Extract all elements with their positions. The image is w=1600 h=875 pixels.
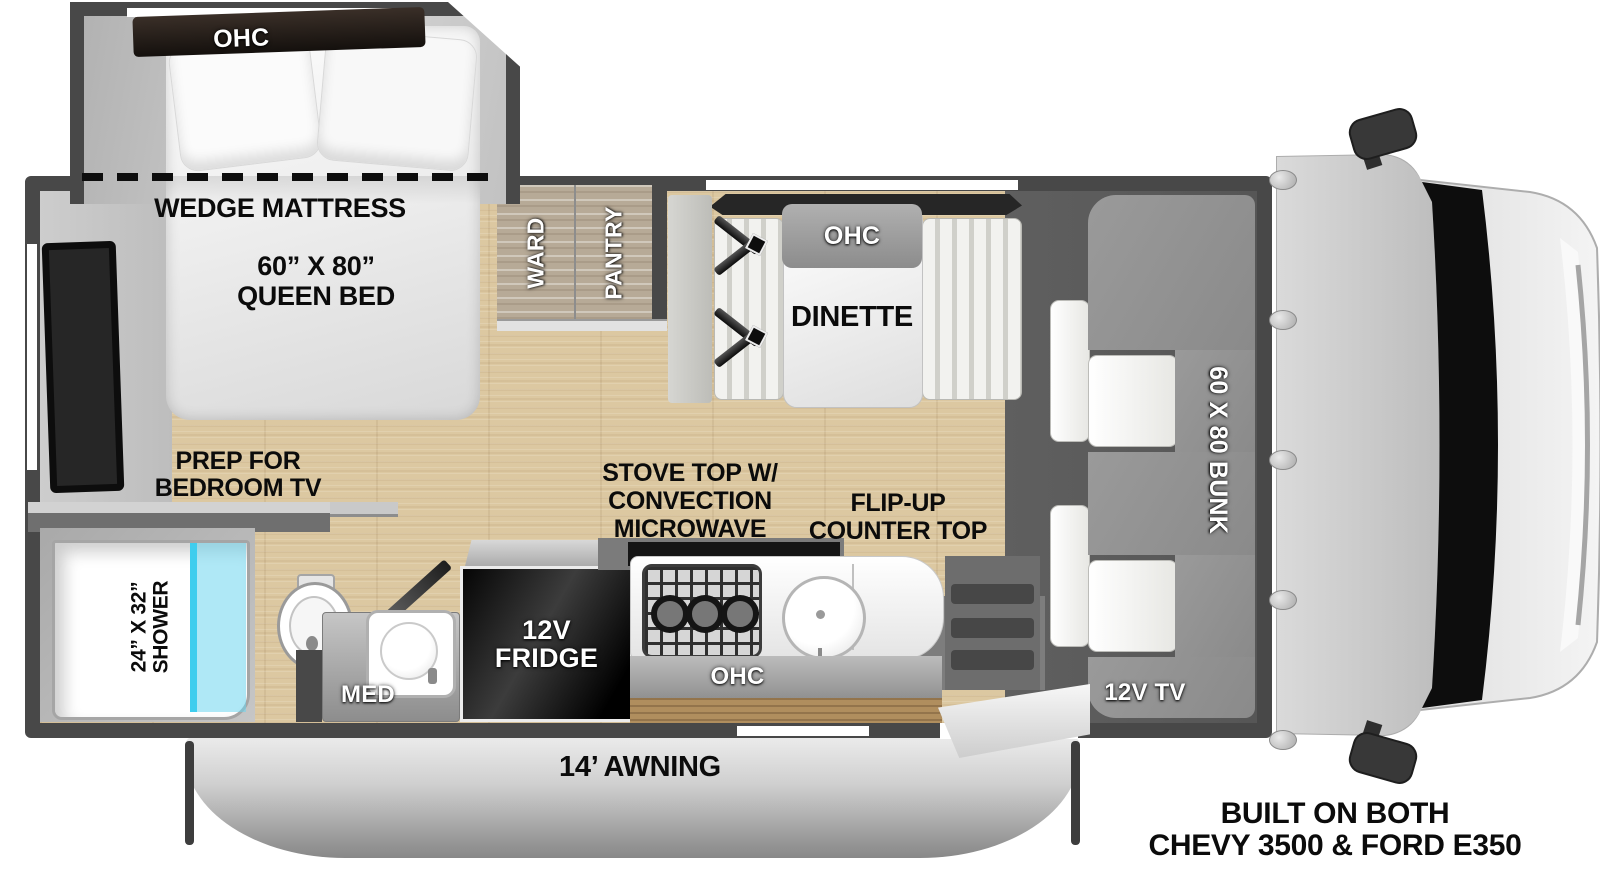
wedge-mattress-label: WEDGE MATTRESS <box>130 194 430 222</box>
cab-seat-passenger <box>1050 300 1090 442</box>
rv-floorplan: 24” X 32” SHOWER MED 12V FRIDGE <box>0 0 1600 875</box>
bunk-label-wrap: 60 X 80 BUNK <box>1190 318 1246 582</box>
left-wall-window <box>27 244 37 470</box>
dinette-wall-window <box>706 180 1018 190</box>
burner-icon <box>721 595 759 633</box>
cab-seat-driver-cushion <box>1088 560 1178 652</box>
kitchen-ohc-cabinet <box>630 656 942 700</box>
cab-seat-driver <box>1050 505 1090 647</box>
kitchen-ohc-label: OHC <box>695 664 780 689</box>
tv-prep-label-1: PREP FOR <box>140 448 336 474</box>
med-label: MED <box>322 682 414 707</box>
pantry-cabinet: PANTRY <box>576 185 652 321</box>
bath-faucet-icon <box>428 668 437 684</box>
shower-label: 24” X 32” SHOWER <box>118 540 182 714</box>
toilet-drain <box>306 636 318 651</box>
bunk-tv-label: 12V TV <box>1095 680 1195 705</box>
kitchen-sink-drain <box>816 610 825 619</box>
burner-icon <box>651 595 689 633</box>
shower-size-label: 24” X 32” <box>128 581 150 674</box>
shower-glass-edge <box>190 543 197 712</box>
flip-up-label-1: FLIP-UP <box>808 490 988 516</box>
stove-top <box>642 564 762 658</box>
kitchen-toe-kick <box>630 698 942 723</box>
awning-end-cap-right <box>1071 741 1080 845</box>
bathroom-doorway-wall <box>296 650 322 722</box>
awning-end-cap-left <box>185 741 194 845</box>
wardrobe-cabinet: WARD <box>497 185 576 321</box>
seam-stud-icon <box>1269 590 1297 610</box>
shower-name-label: SHOWER <box>150 581 172 674</box>
step <box>951 618 1034 638</box>
step <box>951 584 1034 604</box>
pantry-label: PANTRY <box>602 206 626 299</box>
dinette-label: DINETTE <box>783 302 921 332</box>
cab <box>1260 70 1600 810</box>
burner-icon <box>686 595 724 633</box>
cabinet-base-lip <box>497 319 667 331</box>
rear-wall-window <box>737 726 869 736</box>
bedroom-ohc-label: OHC <box>213 24 270 52</box>
chassis-note: BUILT ON BOTH CHEVY 3500 & FORD E350 <box>1100 798 1570 861</box>
ward-label: WARD <box>523 217 547 288</box>
slideout-dashed-line <box>82 173 492 181</box>
kitchen-sink <box>782 576 866 660</box>
pantry-end-wall <box>652 183 667 323</box>
queen-bed <box>166 26 480 420</box>
seam-stud-icon <box>1269 730 1297 750</box>
seam-stud-icon <box>1269 450 1297 470</box>
seam-stud-icon <box>1269 170 1297 190</box>
tv-prep-label-2: BEDROOM TV <box>140 475 336 501</box>
dinette-ohc-cabinet: OHC <box>782 204 922 268</box>
bathroom-wall-top-face <box>28 502 330 513</box>
cab-seat-passenger-cushion <box>1088 355 1178 447</box>
chassis-note-line-1: BUILT ON BOTH <box>1100 798 1570 830</box>
side-mirror-bottom-icon <box>1347 730 1420 786</box>
stove-label-2: CONVECTION <box>585 488 795 514</box>
bedroom-tv <box>42 241 125 493</box>
dinette-bench-right <box>922 218 1022 400</box>
dinette-ohc-label: OHC <box>824 223 880 249</box>
galley-end-cabinet <box>668 195 712 403</box>
cab-roof <box>1277 155 1440 735</box>
awning-label: 14’ AWNING <box>500 752 780 782</box>
bunk-label: 60 X 80 BUNK <box>1205 366 1231 534</box>
entry-stepwell <box>945 556 1040 690</box>
bathroom-ledge <box>330 502 398 517</box>
bed-size-label: 60” X 80” <box>196 252 436 280</box>
stove-label-3: MICROWAVE <box>585 516 795 542</box>
fridge-label-1: 12V <box>495 616 598 644</box>
bed-type-label: QUEEN BED <box>196 282 436 310</box>
stove-label-1: STOVE TOP W/ <box>585 460 795 486</box>
fridge: 12V FRIDGE <box>460 566 633 722</box>
fridge-label-2: FRIDGE <box>495 644 598 672</box>
shower-glass <box>196 543 246 712</box>
seam-stud-icon <box>1269 310 1297 330</box>
side-mirror-top-icon <box>1347 106 1420 162</box>
step <box>951 650 1034 670</box>
flip-up-label-2: COUNTER TOP <box>808 518 988 544</box>
chassis-note-line-2: CHEVY 3500 & FORD E350 <box>1100 830 1570 862</box>
